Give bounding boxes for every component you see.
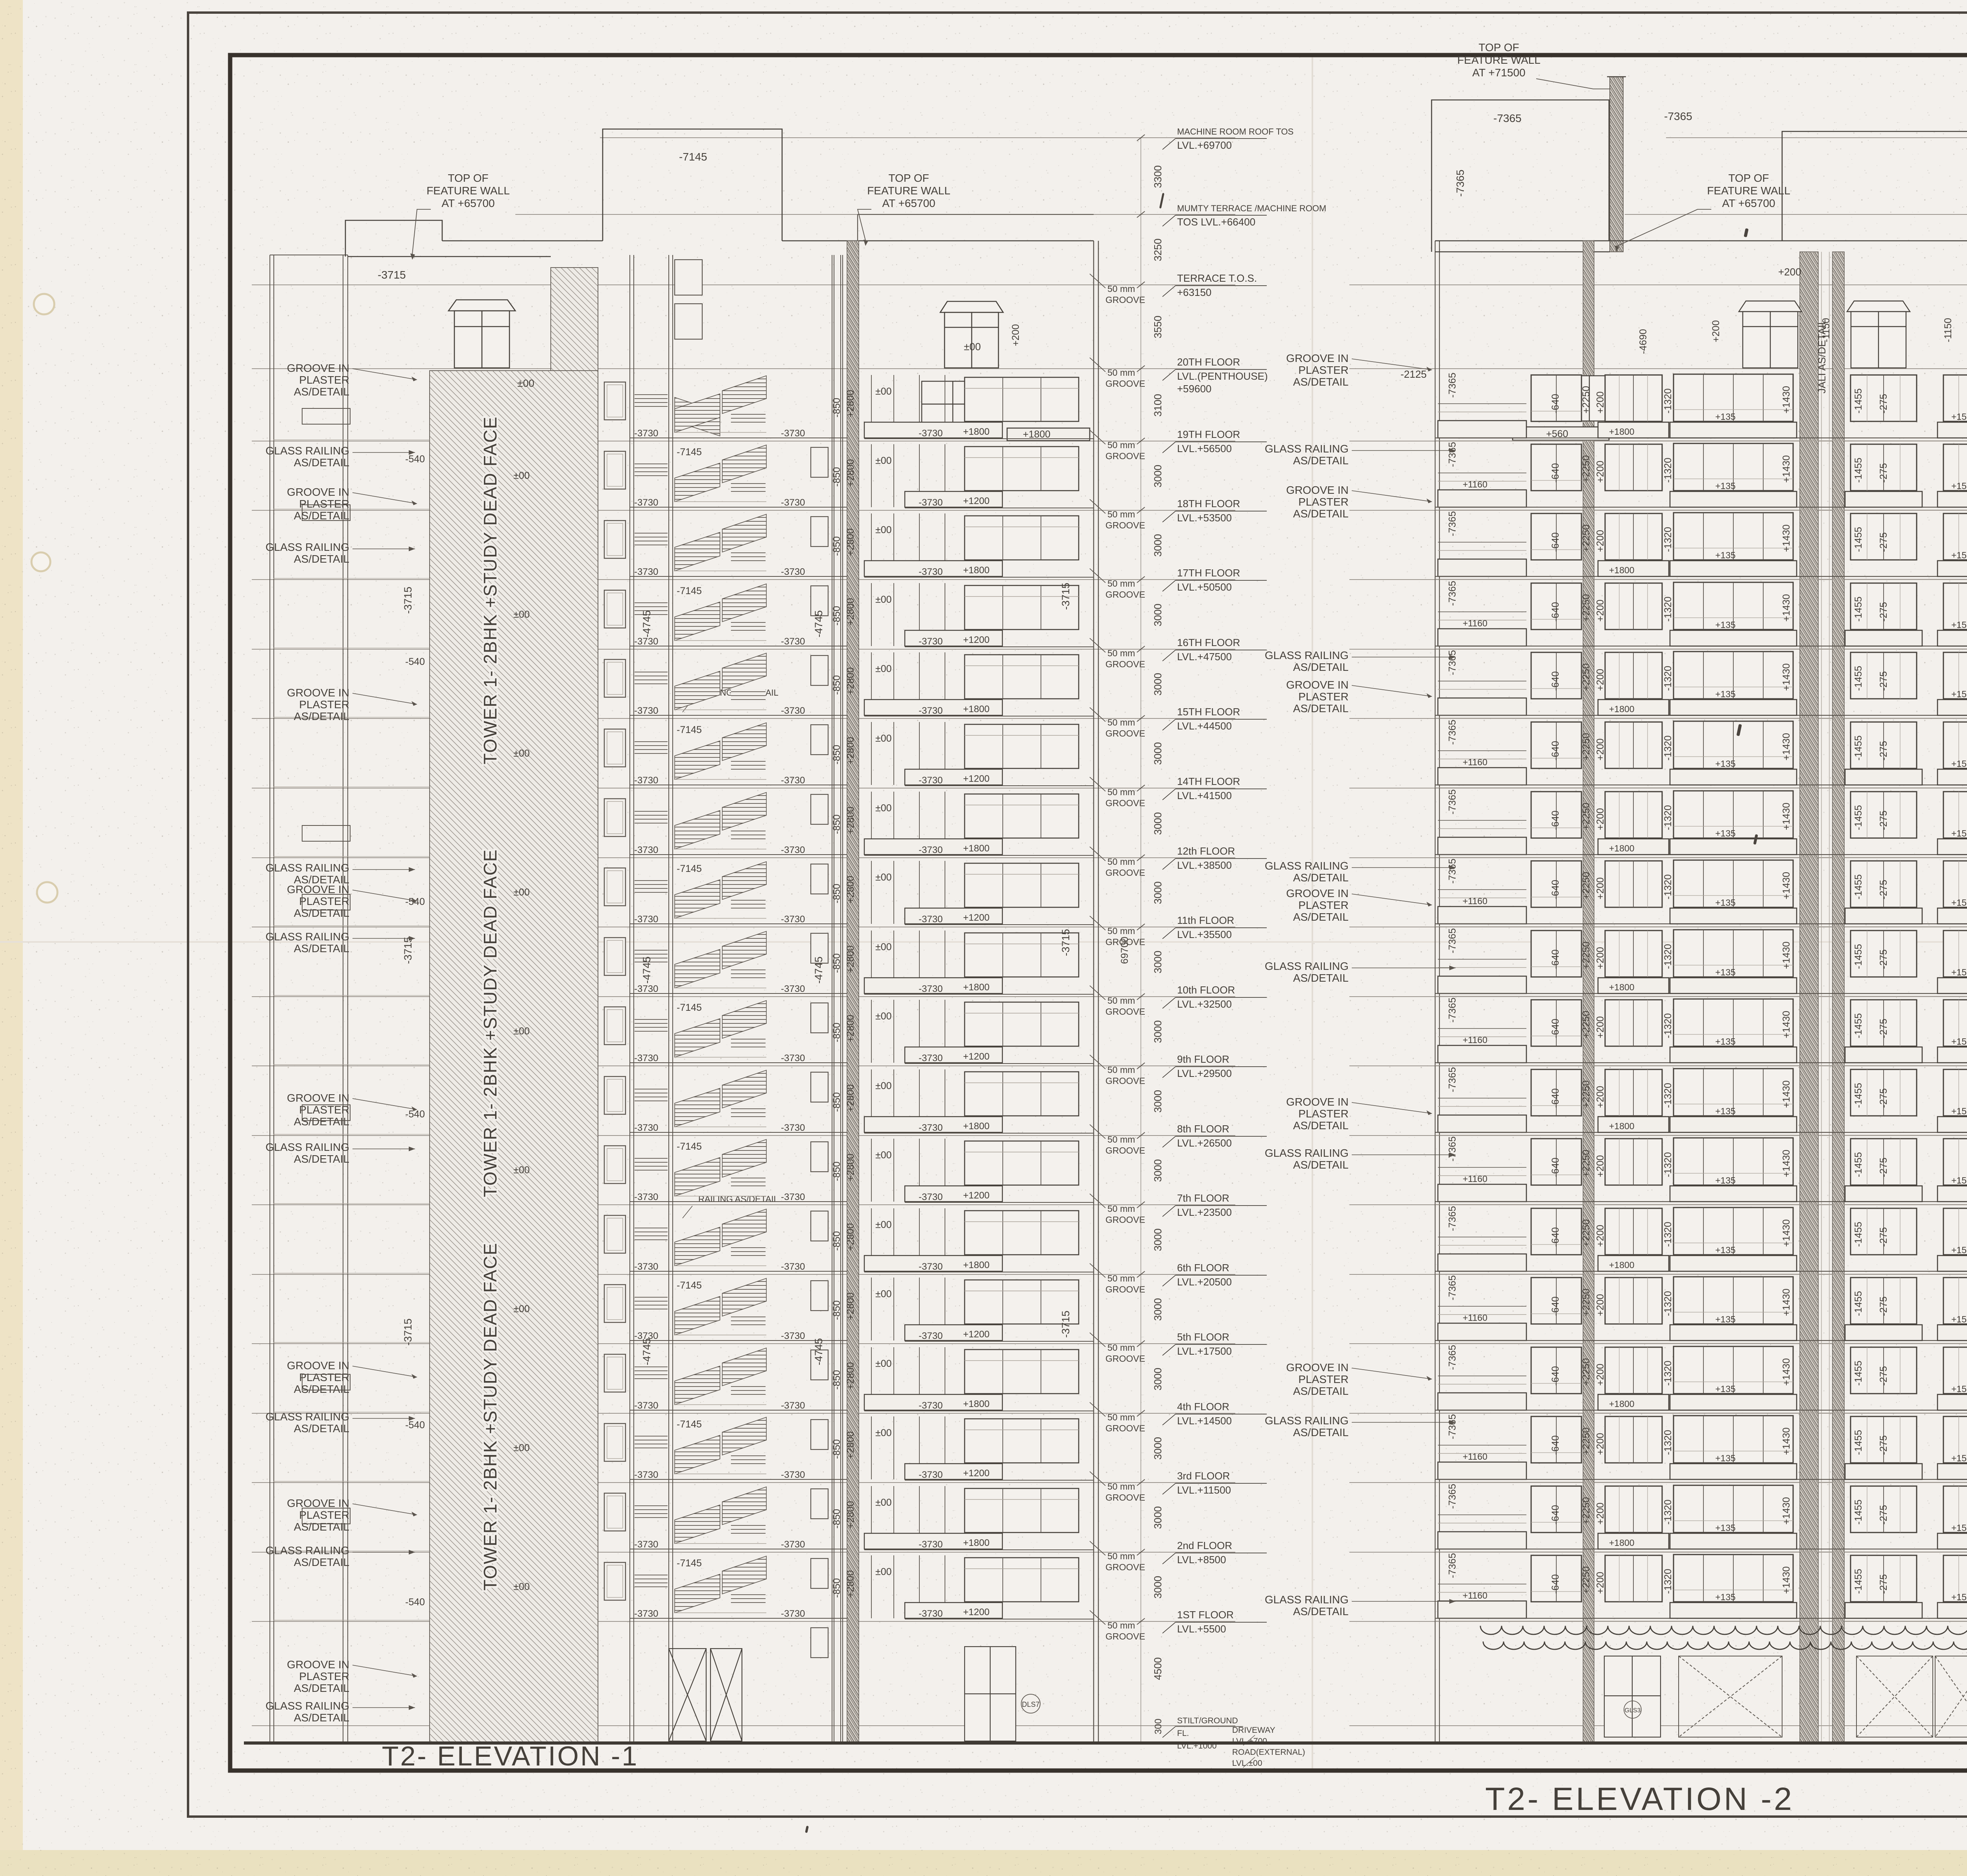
svg-text:3550: 3550	[1152, 316, 1164, 338]
svg-text:-3715: -3715	[378, 269, 406, 281]
svg-text:DLS7: DLS7	[1022, 1701, 1039, 1708]
svg-text:LVL.+14500: LVL.+14500	[1177, 1415, 1232, 1427]
svg-text:9th FLOOR: 9th FLOOR	[1177, 1053, 1229, 1065]
svg-text:LVL.+35500: LVL.+35500	[1177, 929, 1232, 940]
svg-text:14TH FLOOR: 14TH FLOOR	[1177, 776, 1240, 787]
svg-text:±00: ±00	[517, 377, 534, 389]
svg-text:4th FLOOR: 4th FLOOR	[1177, 1401, 1229, 1413]
svg-text:1ST FLOOR: 1ST FLOOR	[1177, 1609, 1234, 1621]
svg-text:±00: ±00	[964, 341, 981, 353]
svg-text:17TH FLOOR: 17TH FLOOR	[1177, 567, 1240, 579]
svg-text:3000: 3000	[1152, 1159, 1164, 1182]
svg-text:-540: -540	[405, 454, 425, 465]
svg-text:-1150: -1150	[1943, 318, 1954, 342]
svg-text:LVL.+8500: LVL.+8500	[1177, 1554, 1226, 1566]
svg-text:GROOVE: GROOVE	[1105, 1423, 1145, 1433]
svg-text:50 mm: 50 mm	[1107, 578, 1135, 589]
svg-text:3000: 3000	[1152, 465, 1164, 487]
svg-text:-3715: -3715	[1060, 929, 1072, 956]
svg-text:6th FLOOR: 6th FLOOR	[1177, 1262, 1229, 1274]
svg-text:50 mm: 50 mm	[1107, 284, 1135, 294]
svg-text:3000: 3000	[1152, 1437, 1164, 1460]
svg-text:50 mm: 50 mm	[1107, 1204, 1135, 1214]
svg-text:50 mm: 50 mm	[1107, 367, 1135, 378]
svg-text:GROOVE: GROOVE	[1105, 1145, 1145, 1156]
svg-text:GROOVE: GROOVE	[1105, 589, 1145, 600]
svg-text:TERRACE T.O.S.: TERRACE T.O.S.	[1177, 272, 1257, 284]
svg-text:TOP OF: TOP OF	[888, 172, 929, 184]
svg-text:3000: 3000	[1152, 742, 1164, 765]
svg-text:LVL.+20500: LVL.+20500	[1177, 1276, 1232, 1288]
svg-text:LVL.+29500: LVL.+29500	[1177, 1067, 1232, 1079]
svg-text:-540: -540	[405, 656, 425, 667]
svg-text:STILT/GROUND: STILT/GROUND	[1177, 1716, 1238, 1725]
svg-text:T2- ELEVATION -2: T2- ELEVATION -2	[1485, 1781, 1794, 1817]
svg-text:-4745: -4745	[813, 1338, 825, 1365]
svg-text:ROAD(EXTERNAL): ROAD(EXTERNAL)	[1232, 1748, 1305, 1757]
svg-text:AT +65700: AT +65700	[882, 197, 935, 209]
svg-text:10th FLOOR: 10th FLOOR	[1177, 984, 1235, 996]
svg-text:LVL.+41500: LVL.+41500	[1177, 790, 1232, 801]
svg-text:LVL.+26500: LVL.+26500	[1177, 1137, 1232, 1149]
svg-text:-3715: -3715	[402, 587, 414, 614]
svg-text:3000: 3000	[1152, 812, 1164, 835]
svg-text:LVL.+44500: LVL.+44500	[1177, 720, 1232, 732]
svg-text:-4745: -4745	[813, 610, 825, 637]
svg-text:16TH FLOOR: 16TH FLOOR	[1177, 637, 1240, 648]
svg-text:TOP OF: TOP OF	[1478, 41, 1519, 54]
svg-text:FEATURE WALL: FEATURE WALL	[426, 185, 510, 197]
svg-text:+1800: +1800	[1023, 429, 1050, 440]
svg-text:2nd FLOOR: 2nd FLOOR	[1177, 1540, 1232, 1551]
svg-text:+200: +200	[1010, 324, 1021, 346]
svg-text:TOP OF: TOP OF	[448, 172, 488, 184]
svg-text:50 mm: 50 mm	[1107, 440, 1135, 450]
svg-text:LVL.+11500: LVL.+11500	[1177, 1484, 1231, 1496]
svg-text:3000: 3000	[1152, 1228, 1164, 1251]
svg-text:MUMTY TERRACE /MACHINE ROOM: MUMTY TERRACE /MACHINE ROOM	[1177, 203, 1326, 213]
svg-text:-7365: -7365	[1454, 170, 1466, 197]
svg-text:3000: 3000	[1152, 1090, 1164, 1113]
svg-text:-3715: -3715	[402, 1318, 414, 1346]
svg-text:19TH FLOOR: 19TH FLOOR	[1177, 428, 1240, 440]
svg-text:GLS3: GLS3	[1625, 1707, 1641, 1714]
svg-text:50 mm: 50 mm	[1107, 509, 1135, 519]
svg-text:LVL.+38500: LVL.+38500	[1177, 859, 1232, 871]
svg-text:-540: -540	[405, 1597, 425, 1608]
svg-text:-4745: -4745	[641, 610, 653, 637]
svg-text:LVL.+53500: LVL.+53500	[1177, 512, 1232, 524]
svg-text:TOS LVL.+66400: TOS LVL.+66400	[1177, 216, 1255, 228]
svg-text:15TH FLOOR: 15TH FLOOR	[1177, 706, 1240, 718]
svg-text:GROOVE: GROOVE	[1105, 520, 1145, 530]
svg-text:T2- ELEVATION -1: T2- ELEVATION -1	[382, 1741, 639, 1771]
svg-text:3000: 3000	[1152, 1020, 1164, 1043]
svg-text:3000: 3000	[1152, 604, 1164, 626]
svg-text:-3715: -3715	[1060, 583, 1072, 610]
svg-text:GROOVE: GROOVE	[1105, 379, 1145, 389]
svg-text:3300: 3300	[1152, 165, 1164, 188]
svg-text:-1150: -1150	[1821, 318, 1832, 342]
svg-text:50 mm: 50 mm	[1107, 648, 1135, 658]
svg-text:-4690: -4690	[1638, 329, 1649, 354]
svg-text:11th FLOOR: 11th FLOOR	[1177, 914, 1234, 926]
svg-text:50 mm: 50 mm	[1107, 1620, 1135, 1630]
svg-text:+200: +200	[1711, 320, 1722, 342]
svg-text:FL.: FL.	[1177, 1729, 1189, 1738]
svg-text:GROOVE: GROOVE	[1105, 295, 1145, 305]
svg-text:LVL.(PENTHOUSE): LVL.(PENTHOUSE)	[1177, 370, 1268, 382]
svg-text:LVL.+32500: LVL.+32500	[1177, 998, 1232, 1010]
svg-text:-540: -540	[405, 1420, 425, 1431]
svg-text:50 mm: 50 mm	[1107, 1481, 1135, 1492]
svg-text:-2125: -2125	[1401, 368, 1427, 380]
svg-text:TOWER 1- 2BHK +STUDY DEAD FACE: TOWER 1- 2BHK +STUDY DEAD FACE	[480, 416, 500, 764]
svg-text:50 mm: 50 mm	[1107, 1065, 1135, 1075]
svg-text:50 mm: 50 mm	[1107, 1551, 1135, 1561]
svg-text:LVL.±00: LVL.±00	[1232, 1759, 1262, 1768]
svg-text:TOWER 1- 2BHK +STUDY DEAD FACE: TOWER 1- 2BHK +STUDY DEAD FACE	[480, 849, 500, 1197]
svg-text:LVL.+5500: LVL.+5500	[1177, 1623, 1226, 1635]
svg-text:GROOVE: GROOVE	[1105, 1631, 1145, 1641]
svg-text:AT +65700: AT +65700	[441, 197, 495, 209]
svg-text:LVL.+56500: LVL.+56500	[1177, 443, 1232, 454]
svg-text:GROOVE: GROOVE	[1105, 451, 1145, 461]
svg-text:+59600: +59600	[1177, 383, 1211, 395]
svg-text:GROOVE: GROOVE	[1105, 868, 1145, 878]
svg-text:GROOVE: GROOVE	[1105, 728, 1145, 739]
svg-text:+63150: +63150	[1177, 286, 1211, 298]
svg-text:3rd FLOOR: 3rd FLOOR	[1177, 1470, 1230, 1482]
svg-text:FEATURE WALL: FEATURE WALL	[1457, 54, 1541, 66]
svg-text:FEATURE WALL: FEATURE WALL	[867, 185, 950, 197]
svg-text:50 mm: 50 mm	[1107, 1134, 1135, 1145]
svg-text:+200: +200	[1778, 266, 1801, 278]
svg-text:GROOVE: GROOVE	[1105, 1006, 1145, 1017]
svg-text:LVL.+17500: LVL.+17500	[1177, 1345, 1232, 1357]
svg-text:GROOVE: GROOVE	[1105, 659, 1145, 669]
svg-text:DRIVEWAY: DRIVEWAY	[1232, 1726, 1275, 1735]
svg-text:GROOVE: GROOVE	[1105, 1215, 1145, 1225]
svg-text:8th FLOOR: 8th FLOOR	[1177, 1123, 1229, 1135]
svg-text:3000: 3000	[1152, 1298, 1164, 1321]
svg-text:LVL.+50500: LVL.+50500	[1177, 581, 1232, 593]
svg-text:5th FLOOR: 5th FLOOR	[1177, 1331, 1229, 1343]
svg-text:3000: 3000	[1152, 1576, 1164, 1599]
svg-text:69700: 69700	[1119, 936, 1130, 964]
svg-text:LVL.+47500: LVL.+47500	[1177, 651, 1232, 663]
svg-text:3250: 3250	[1152, 238, 1164, 261]
svg-text:-3715: -3715	[402, 937, 414, 964]
svg-text:GROOVE: GROOVE	[1105, 1353, 1145, 1364]
svg-text:GROOVE: GROOVE	[1105, 798, 1145, 808]
svg-text:20TH FLOOR: 20TH FLOOR	[1177, 356, 1240, 368]
svg-text:3000: 3000	[1152, 1368, 1164, 1390]
svg-text:-3715: -3715	[1060, 1311, 1072, 1338]
svg-text:50 mm: 50 mm	[1107, 857, 1135, 867]
svg-text:50 mm: 50 mm	[1107, 1342, 1135, 1353]
svg-text:LVL.+69700: LVL.+69700	[1177, 139, 1232, 151]
svg-text:FEATURE WALL: FEATURE WALL	[1707, 185, 1790, 197]
svg-text:50 mm: 50 mm	[1107, 926, 1135, 936]
svg-text:MACHINE ROOM ROOF TOS: MACHINE ROOM ROOF TOS	[1177, 127, 1293, 137]
svg-text:3000: 3000	[1152, 1506, 1164, 1529]
svg-text:50 mm: 50 mm	[1107, 995, 1135, 1006]
svg-text:AT +71500: AT +71500	[1472, 66, 1525, 79]
svg-text:300: 300	[1153, 1719, 1164, 1734]
svg-text:GROOVE: GROOVE	[1105, 1492, 1145, 1503]
svg-text:3000: 3000	[1152, 881, 1164, 904]
svg-text:-7365: -7365	[1664, 110, 1692, 122]
svg-text:-4745: -4745	[641, 956, 653, 984]
svg-text:3100: 3100	[1152, 394, 1164, 417]
svg-text:3000: 3000	[1152, 534, 1164, 557]
svg-text:7th FLOOR: 7th FLOOR	[1177, 1192, 1229, 1204]
svg-text:18TH FLOOR: 18TH FLOOR	[1177, 498, 1240, 510]
svg-text:-4745: -4745	[813, 956, 825, 984]
svg-text:AT +65700: AT +65700	[1722, 197, 1775, 209]
svg-text:3000: 3000	[1152, 673, 1164, 696]
svg-text:3000: 3000	[1152, 951, 1164, 973]
svg-text:GROOVE: GROOVE	[1105, 1076, 1145, 1086]
svg-text:GROOVE: GROOVE	[1105, 1284, 1145, 1294]
svg-text:GROOVE: GROOVE	[1105, 1562, 1145, 1572]
svg-text:4500: 4500	[1152, 1657, 1164, 1680]
svg-text:-7365: -7365	[1493, 112, 1522, 124]
svg-text:50 mm: 50 mm	[1107, 1412, 1135, 1422]
svg-text:12th FLOOR: 12th FLOOR	[1177, 845, 1235, 857]
svg-text:RAILING AS/DETAIL: RAILING AS/DETAIL	[698, 1194, 779, 1204]
svg-text:-7145: -7145	[679, 151, 707, 163]
svg-text:TOP OF: TOP OF	[1728, 172, 1769, 184]
svg-text:50 mm: 50 mm	[1107, 787, 1135, 797]
svg-text:TOWER 1- 2BHK +STUDY DEAD FACE: TOWER 1- 2BHK +STUDY DEAD FACE	[480, 1242, 500, 1590]
svg-text:LVL.+23500: LVL.+23500	[1177, 1206, 1232, 1218]
svg-text:50 mm: 50 mm	[1107, 1273, 1135, 1283]
svg-text:-4745: -4745	[641, 1338, 653, 1365]
svg-text:50 mm: 50 mm	[1107, 717, 1135, 728]
